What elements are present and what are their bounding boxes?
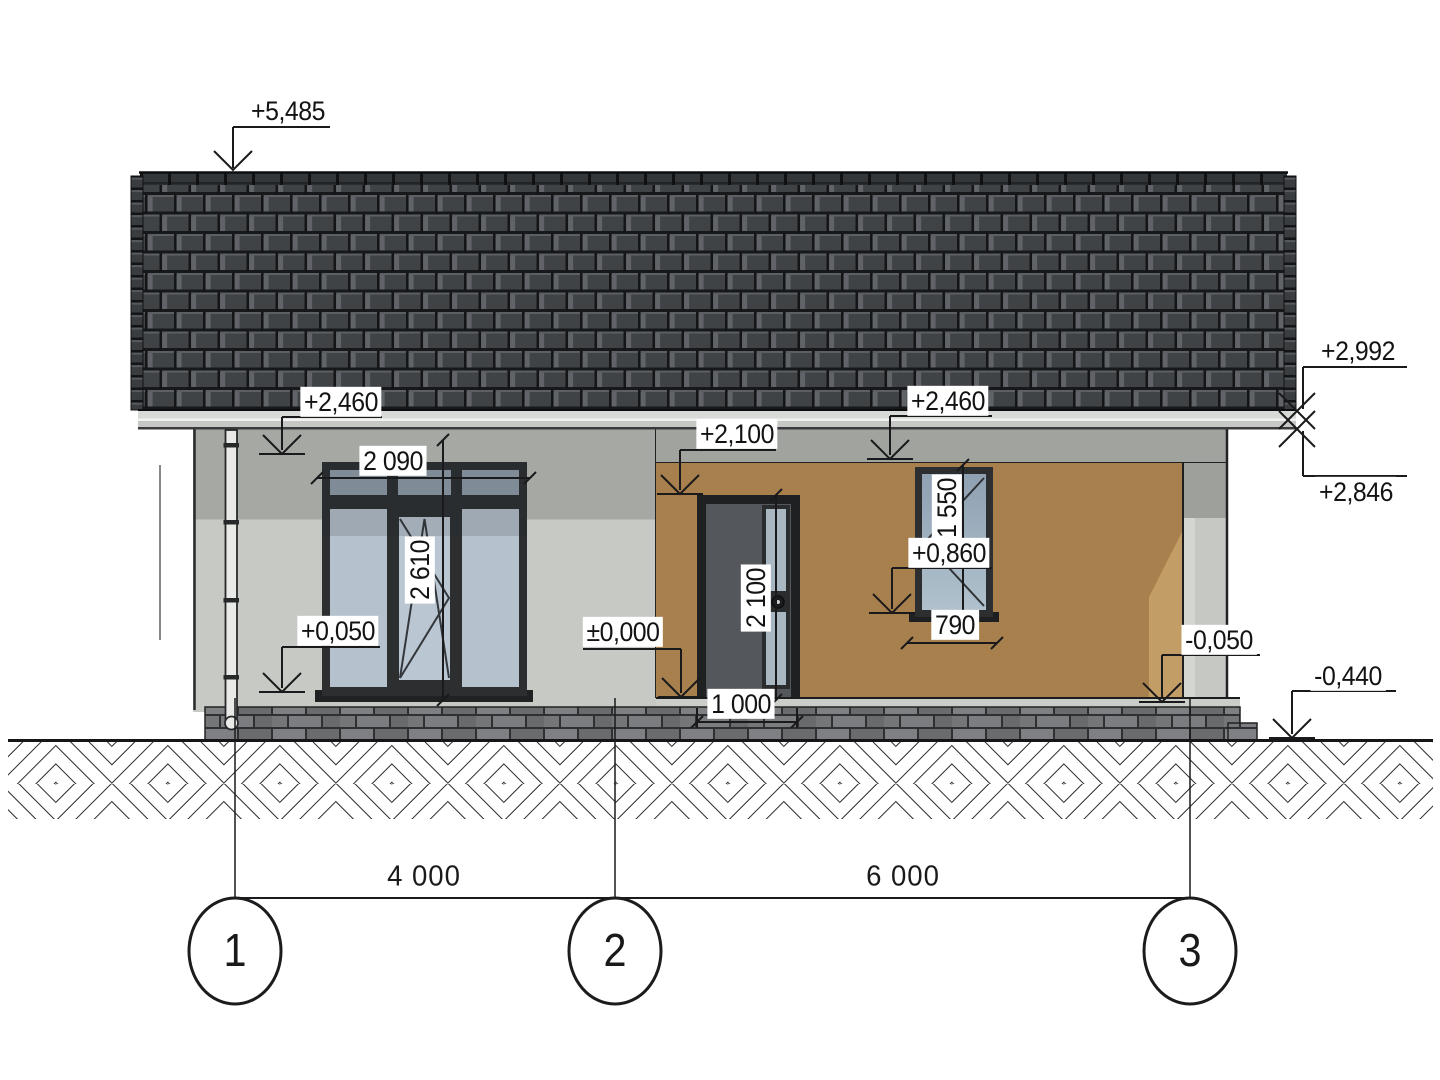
dim-label-small-window-width: 790 [931,610,978,640]
elevation-label-ridge: +5,485 [247,96,328,126]
axis-number-2: 2 [603,923,626,977]
roof-ridge [140,172,1287,185]
axis-number-3: 3 [1178,923,1201,977]
downspout-shoe [225,717,238,730]
downspout [224,430,240,730]
roof-verge-right [1284,176,1296,410]
elevation-label-ground: -0,440 [1310,661,1385,691]
elevation-label-eave-top-right: +2,992 [1317,336,1398,366]
elevation-label-small-window-sill: +0,860 [908,538,989,568]
elevation-label-porch-slab: -0,050 [1181,625,1256,655]
elevation-label-eave-bottom-right: +2,846 [1315,477,1396,507]
elevation-linework [0,0,1440,1080]
roof-verge-left [131,176,143,410]
axis-number-1: 1 [223,923,246,977]
elevation-drawing-canvas: +5,485 +2,460 +2,460 +2,100 +2,992 +2,84… [0,0,1440,1080]
elevation-label-floor-left: +0,050 [297,616,378,646]
dim-label-door-height: 2 100 [741,564,771,631]
ground-hatch [8,742,1433,819]
roof [131,172,1296,410]
elevation-label-eave-left: +2,460 [300,387,381,417]
dim-label-door-width: 1 000 [707,689,774,719]
dim-label-window-height: 2 610 [405,536,435,603]
elevation-label-eave-right: +2,460 [907,386,988,416]
plinth-step [1228,723,1257,740]
dim-label-window-width: 2 090 [359,446,426,476]
elevation-label-door-top: +2,100 [696,419,777,449]
axis-span-label-1-2: 4 000 [387,861,461,894]
axis-span-label-2-3: 6 000 [866,861,940,894]
elevation-label-floor-zero: ±0,000 [583,617,663,647]
roof-tiles [143,172,1284,410]
dim-label-small-window-height: 1 550 [932,474,962,541]
